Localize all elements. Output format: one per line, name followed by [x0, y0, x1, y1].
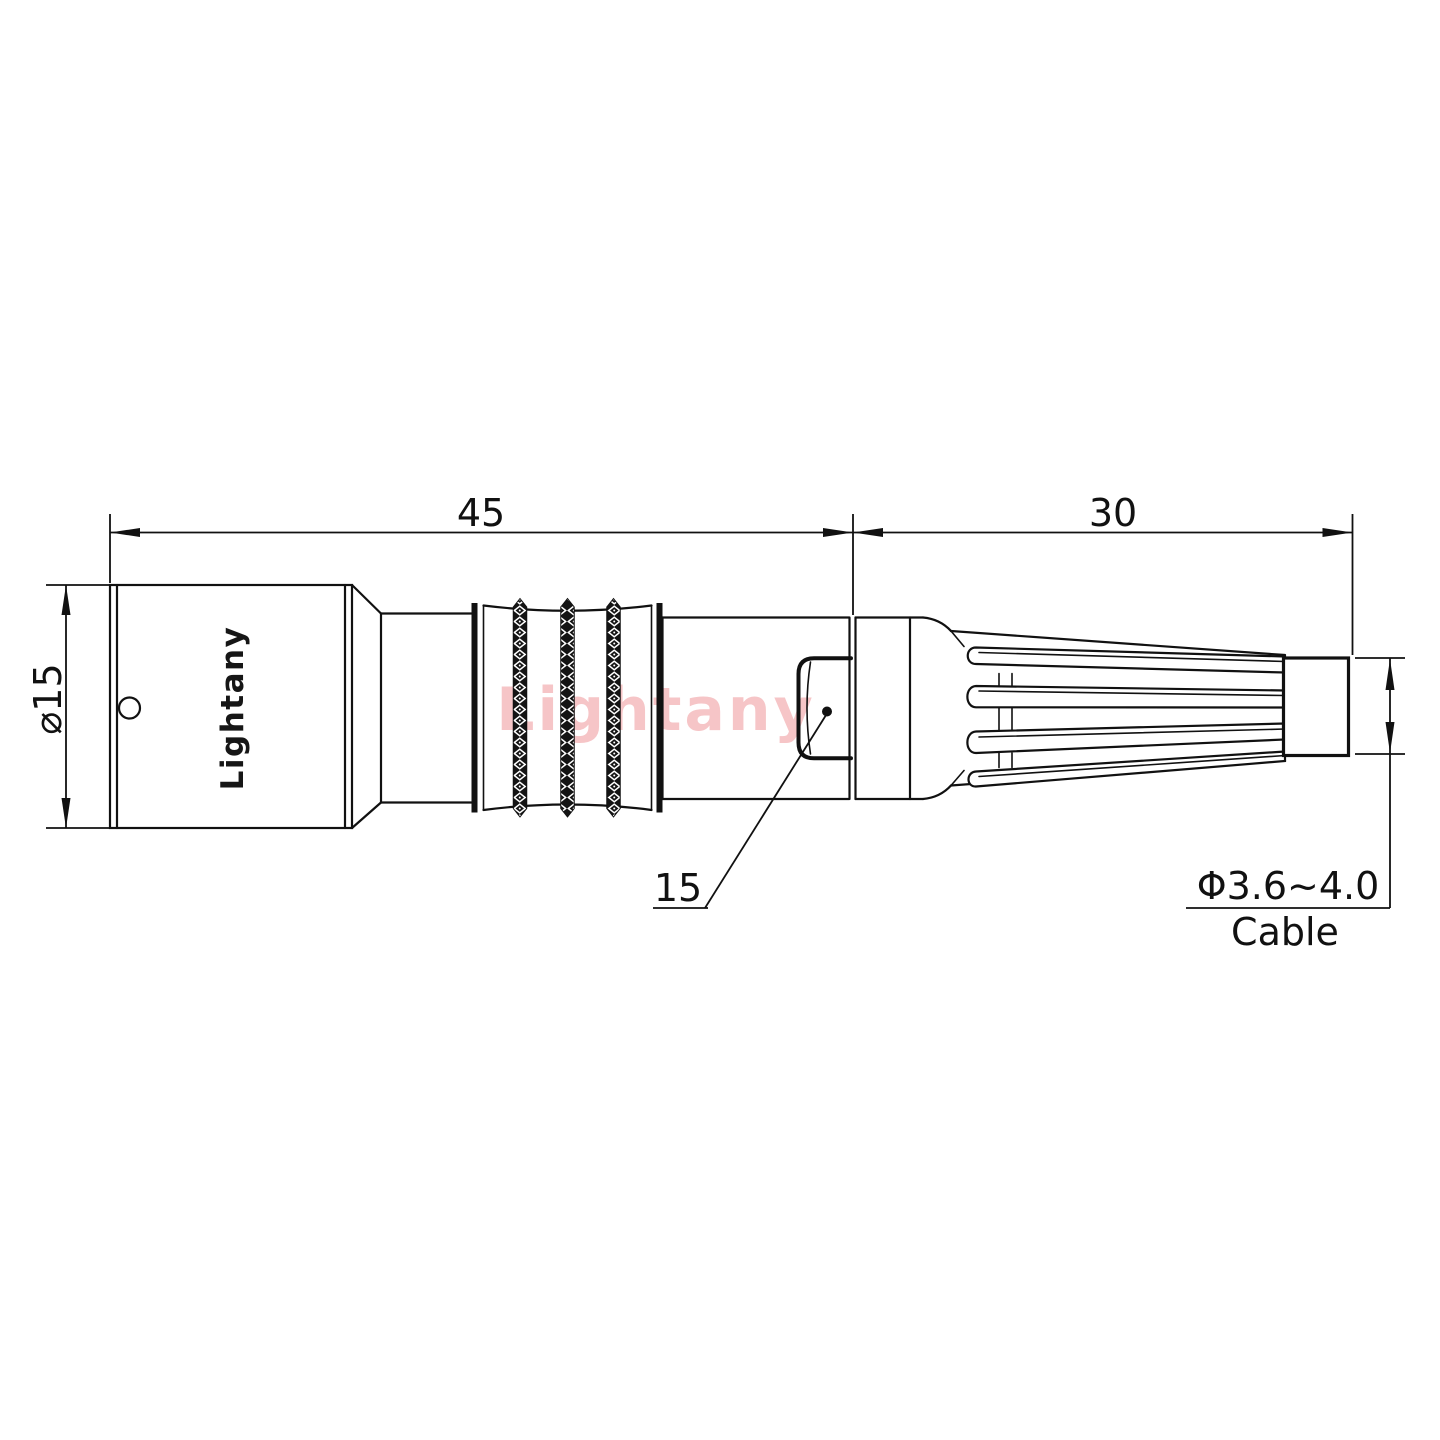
dim-cable-diameter-text: Φ3.6~4.0	[1197, 864, 1380, 908]
feature-callout-text: 15	[654, 866, 702, 910]
cable-end-sleeve	[1284, 658, 1349, 756]
dim-body-diameter-text: ⌀15	[26, 663, 70, 734]
knurl-left-ring	[472, 603, 478, 813]
watermark-text: Lightany	[496, 675, 815, 745]
connector-technical-drawing: Lightany Lightany	[0, 0, 1440, 1440]
knurl-band-2	[561, 599, 575, 818]
brand-label: Lightany	[215, 626, 251, 791]
dim-rear-length-text: 30	[1089, 491, 1137, 535]
drawing-sheet: Lightany Lightany	[0, 0, 1440, 1440]
knurl-band-1	[513, 599, 527, 818]
finger-2	[967, 686, 1285, 708]
dim-overall-length-text: 45	[457, 491, 505, 535]
cable-label-text: Cable	[1231, 910, 1339, 954]
knurl-band-3	[607, 599, 621, 818]
